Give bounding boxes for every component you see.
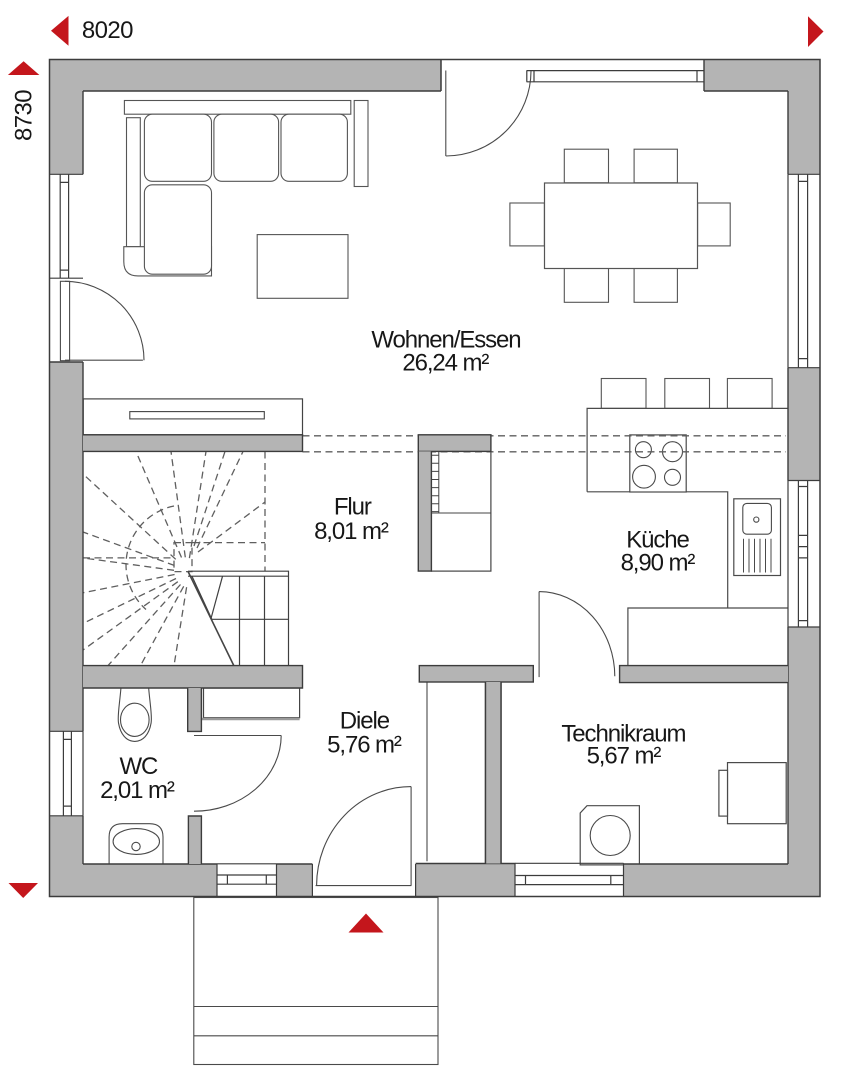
svg-text:26,24 m²: 26,24 m² — [402, 349, 489, 376]
svg-text:8,01 m²: 8,01 m² — [314, 518, 389, 545]
svg-text:5,67 m²: 5,67 m² — [587, 743, 662, 770]
svg-text:5,76 m²: 5,76 m² — [327, 731, 402, 758]
svg-text:Diele: Diele — [340, 707, 390, 734]
svg-text:Flur: Flur — [334, 494, 372, 521]
svg-text:2,01 m²: 2,01 m² — [100, 777, 175, 804]
svg-text:8020: 8020 — [82, 17, 133, 44]
svg-text:8730: 8730 — [11, 90, 38, 141]
svg-text:8,90 m²: 8,90 m² — [621, 549, 696, 576]
